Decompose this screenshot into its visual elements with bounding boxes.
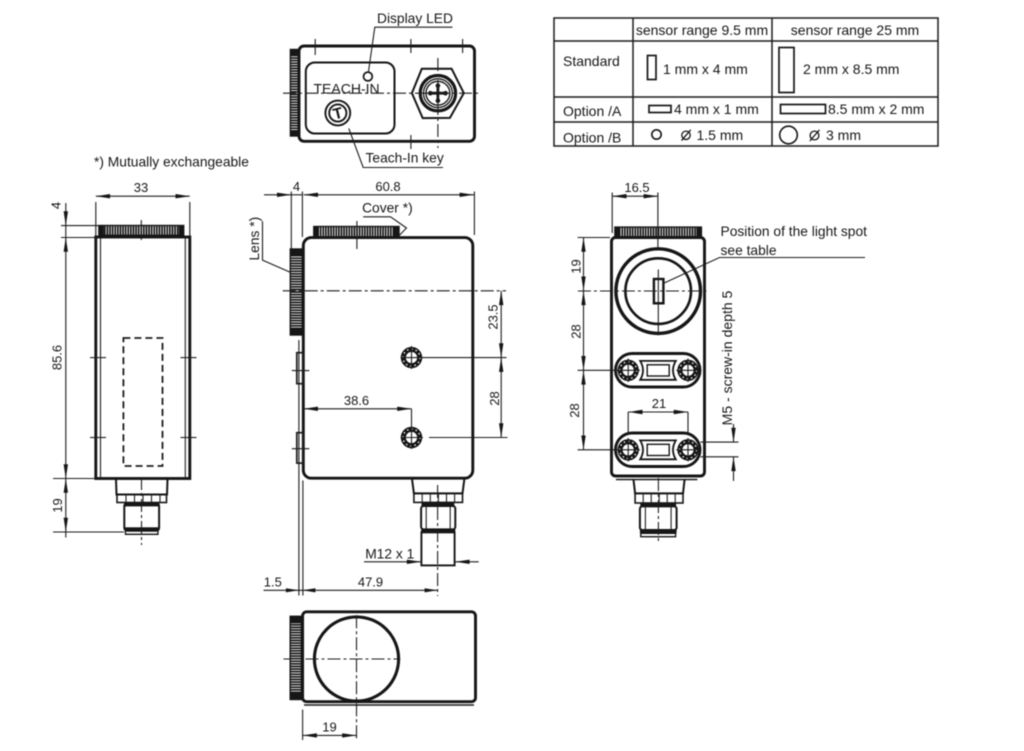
svg-text:see table: see table: [721, 243, 777, 258]
svg-text:19: 19: [322, 720, 336, 735]
svg-text:8.5 mm x 2 mm: 8.5 mm x 2 mm: [828, 101, 924, 117]
svg-text:sensor range 25 mm: sensor range 25 mm: [791, 22, 919, 38]
svg-text:28: 28: [567, 403, 582, 417]
svg-text:4: 4: [293, 179, 300, 194]
svg-text:28: 28: [569, 324, 584, 338]
svg-text:60.8: 60.8: [375, 179, 400, 194]
svg-text:Option /A: Option /A: [563, 103, 622, 119]
svg-text:21: 21: [652, 396, 666, 411]
svg-text:47.9: 47.9: [358, 575, 383, 590]
svg-text:M5 - screw-in depth 5: M5 - screw-in depth 5: [719, 290, 735, 425]
svg-text:28: 28: [487, 391, 502, 405]
svg-text:1 mm x 4 mm: 1 mm x 4 mm: [663, 61, 748, 77]
svg-text:*) Mutually exchangeable: *) Mutually exchangeable: [94, 155, 249, 170]
svg-text:33: 33: [134, 180, 148, 195]
svg-text:Teach-In key: Teach-In key: [366, 151, 444, 166]
svg-text:Lens *): Lens *): [247, 217, 262, 261]
svg-text:Standard: Standard: [563, 53, 620, 69]
svg-text:2 mm x 8.5 mm: 2 mm x 8.5 mm: [803, 61, 899, 77]
svg-text:19: 19: [50, 498, 65, 512]
svg-text:1.5: 1.5: [264, 575, 282, 590]
svg-text:19: 19: [569, 259, 584, 273]
svg-text:Option /B: Option /B: [563, 130, 621, 146]
svg-text:85.6: 85.6: [50, 345, 65, 370]
svg-text:sensor range 9.5 mm: sensor range 9.5 mm: [636, 22, 768, 38]
svg-text:4: 4: [49, 202, 64, 209]
svg-text:23.5: 23.5: [486, 304, 501, 329]
svg-text:Position of the light spot: Position of the light spot: [721, 224, 868, 239]
svg-text:Display LED: Display LED: [377, 11, 453, 26]
svg-text:4 mm x 1 mm: 4 mm x 1 mm: [674, 101, 759, 117]
svg-text:1.5 mm: 1.5 mm: [697, 127, 744, 143]
svg-text:Cover *): Cover *): [362, 201, 413, 216]
svg-text:38.6: 38.6: [344, 393, 369, 408]
svg-text:M12 x 1: M12 x 1: [365, 547, 414, 562]
svg-text:16.5: 16.5: [624, 180, 649, 195]
svg-text:TEACH-IN: TEACH-IN: [314, 81, 380, 97]
svg-text:3 mm: 3 mm: [826, 127, 861, 143]
